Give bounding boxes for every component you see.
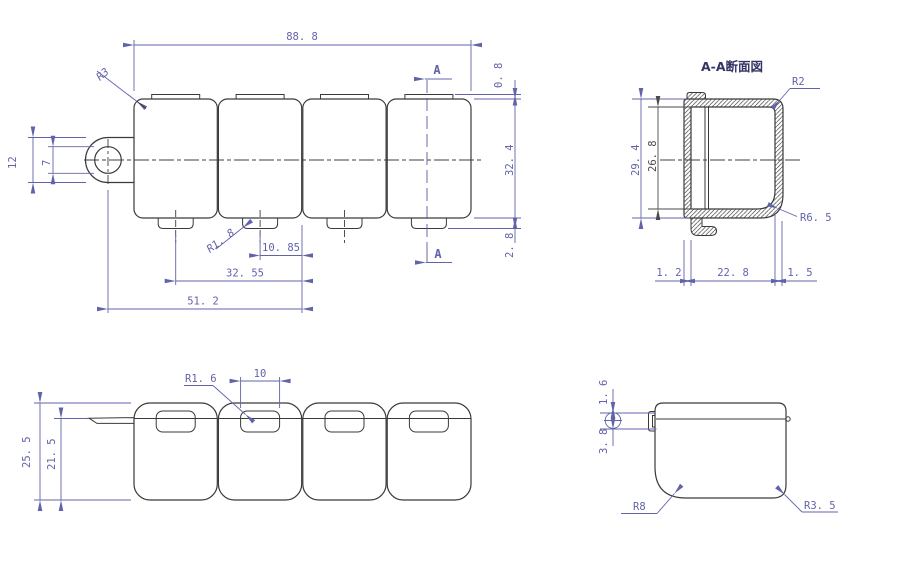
leader-r8 [657, 494, 675, 514]
plan-cell-4 [387, 403, 471, 500]
section-bottom-hook [691, 218, 717, 236]
dim-overall-depth: 25. 5 [21, 436, 33, 468]
dim-3-8: 3. 8 [598, 429, 610, 454]
section-view: A-A断面図 29. 4 26. 8 R2 R6. 5 [630, 59, 832, 286]
plan-view: 25. 5 21. 5 10 R1. 6 [21, 368, 471, 500]
dim-1-6: 1. 6 [598, 380, 610, 405]
dim-51-2: 51. 2 [187, 296, 219, 308]
dim-hole-diameter: 7 [41, 160, 53, 166]
dim-top-tab-height: 0. 8 [493, 63, 505, 88]
dim-inner-width: 22. 8 [717, 267, 749, 279]
dim-slot-radius: R1. 6 [185, 373, 217, 385]
dim-wall-left: 1. 2 [656, 267, 681, 279]
dim-overall-height: 32. 4 [504, 144, 516, 176]
dim-wall-right: 1. 5 [787, 267, 812, 279]
side-view: 1. 6 3. 8 R8 R3. 5 [598, 380, 838, 514]
top-tab-1 [152, 95, 200, 100]
dim-body-depth: 21. 5 [46, 438, 58, 470]
drawing-svg: A A 88. 8 0. 8 32. 4 2. 8 12 7 [0, 0, 909, 566]
dim-overall-width: 88. 8 [286, 31, 318, 43]
top-tab-4 [405, 95, 453, 100]
side-body-outline [655, 403, 786, 498]
leader-r3-tick [137, 102, 146, 109]
dim-bottom-tab-height: 2. 8 [504, 233, 516, 258]
top-tab-2 [236, 95, 284, 100]
bottom-tab-4 [411, 218, 446, 229]
dim-radius-left: R8 [633, 501, 646, 513]
dim-slot-width: 10 [254, 368, 267, 380]
plan-slot-1 [156, 411, 195, 432]
dim-radius-right: R3. 5 [804, 500, 836, 512]
section-sleeve-walls [684, 99, 783, 218]
dim-radius-bottom-tab: R1. 8 [205, 227, 237, 256]
plan-cell-1 [134, 403, 217, 500]
front-view: A A 88. 8 0. 8 32. 4 2. 8 12 7 [7, 31, 521, 313]
plan-cell-2 [218, 403, 301, 500]
dim-tab-height: 12 [7, 156, 19, 169]
plan-slot-3 [325, 411, 364, 432]
cell-1-outline [134, 99, 217, 218]
plan-slot-4 [409, 411, 448, 432]
cell-3-outline [303, 99, 386, 218]
dim-radius-bottom: R6. 5 [800, 212, 832, 224]
engineering-drawing-canvas: A A 88. 8 0. 8 32. 4 2. 8 12 7 [0, 0, 909, 566]
dim-10-85: 10. 85 [262, 242, 300, 254]
top-tab-3 [321, 95, 369, 100]
section-letter-top: A [433, 63, 441, 77]
section-view-title: A-A断面図 [701, 59, 763, 74]
cell-4-outline [387, 99, 471, 218]
plan-cell-3 [303, 403, 386, 500]
dim-outer-height: 29. 4 [630, 144, 642, 176]
section-top-tab [687, 93, 706, 100]
leader-r3-5 [785, 495, 803, 513]
cell-2-outline [218, 99, 301, 218]
dim-radius-top: R2 [792, 76, 805, 88]
plan-tab-strip [89, 418, 134, 424]
dim-32-55: 32. 55 [226, 268, 264, 280]
section-letter-bottom: A [434, 247, 442, 261]
plan-slot-2 [241, 411, 280, 432]
leader-r2 [780, 89, 790, 101]
dim-inner-height: 26. 8 [647, 140, 659, 172]
leader-r6-5 [778, 209, 797, 217]
side-hook [649, 412, 656, 432]
